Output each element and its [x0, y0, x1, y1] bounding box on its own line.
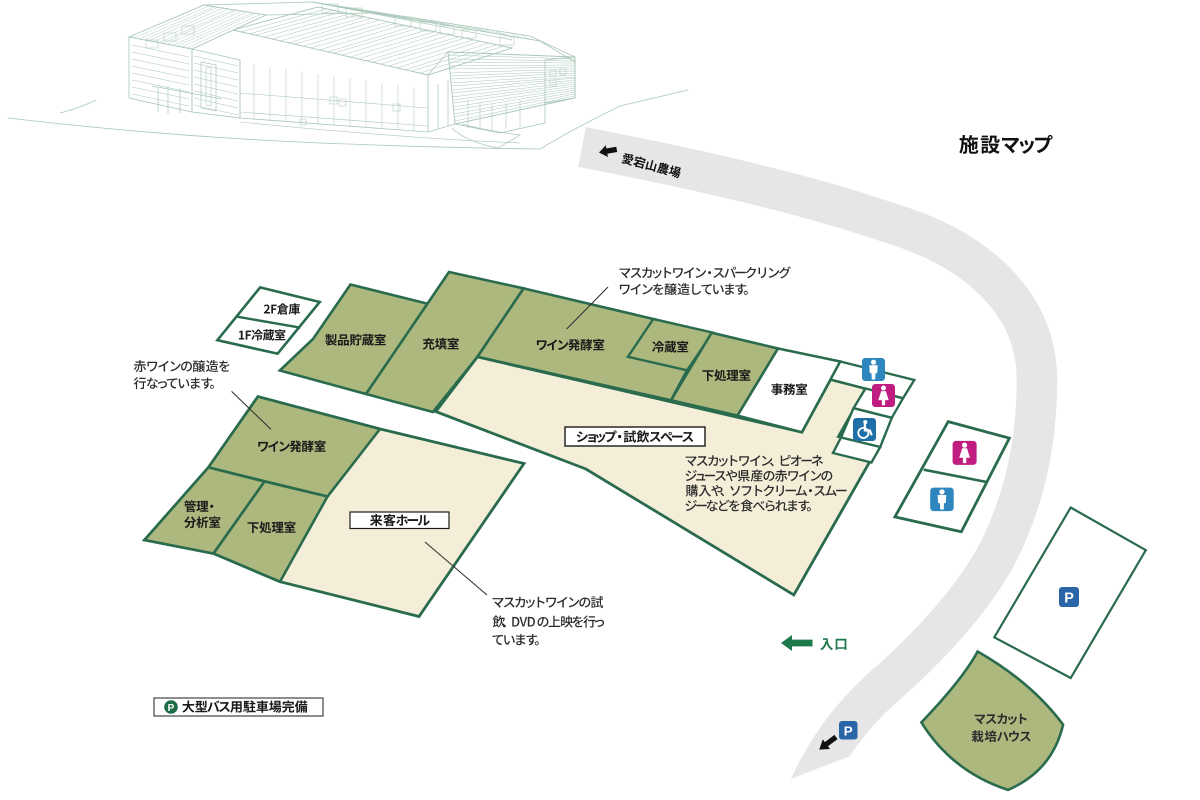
svg-text:P: P [844, 723, 853, 738]
svg-text:P: P [168, 703, 175, 714]
svg-text:P: P [1064, 591, 1074, 607]
